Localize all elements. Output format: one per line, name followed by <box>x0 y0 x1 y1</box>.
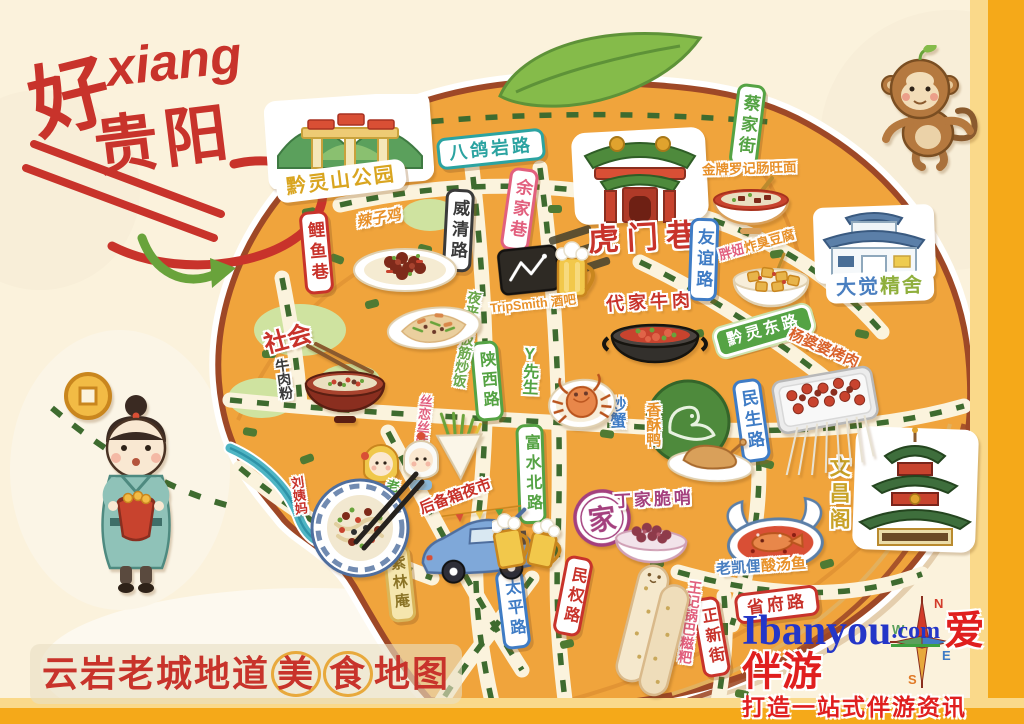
changwang-noodles-illustration <box>706 176 796 236</box>
bbq-skewers-illustration <box>770 360 880 475</box>
watermark-domain: .com <box>891 618 940 647</box>
stinky-tofu-bowl-illustration <box>726 248 816 318</box>
landmark-label-dajue-jingshe: 大觉精舍 <box>826 270 935 304</box>
map-subtitle-prefix: 云岩老城地道 <box>42 653 270 694</box>
boy-mascot-illustration <box>58 368 198 598</box>
watermark: Ibanyou.com 爱伴游 打造一站式伴游资讯 <box>742 610 1020 719</box>
guiyang-food-map: 好 xiang 贵阳 黔灵山公园 虎门巷 大觉精舍 文昌阁 八鸽岩路 余家巷 威… <box>0 0 1024 724</box>
title-pinyin-xiang: xiang <box>104 29 245 95</box>
humen-gate-illustration <box>565 126 715 226</box>
beef-noodle-bowl-illustration <box>296 342 391 427</box>
watermark-brand-en: Ibanyou <box>742 608 891 654</box>
food-label-dingjia-cuishao: 丁家脆哨 <box>614 488 695 512</box>
green-arrow-icon <box>132 224 237 294</box>
map-subtitle-circled-shi: 食 <box>323 651 373 697</box>
dajue-label-part1: 大觉 <box>836 276 881 300</box>
guoba-ciba-illustration <box>596 560 701 700</box>
siwawa-veggie-roll-illustration <box>425 409 492 485</box>
beer-mugs-illustration <box>492 506 562 586</box>
watermark-tagline: 打造一站式伴游资讯 <box>742 696 1020 719</box>
compass-n-label: N <box>934 596 943 611</box>
roast-duck-plate-illustration <box>664 425 758 486</box>
food-label-xiangsu-duck: 香酥鸭 <box>644 402 661 447</box>
beef-hotpot-illustration <box>598 312 713 382</box>
map-subtitle-circled-mei: 美 <box>271 651 321 697</box>
laokaili-label-part2: 酸汤鱼 <box>760 555 806 575</box>
title-chars-guiyang: 贵阳 <box>91 100 238 181</box>
landmark-label-humen-alley: 虎门巷 <box>587 217 706 259</box>
laosufen-bowl-illustration <box>298 468 428 578</box>
monkey-mascot-illustration <box>860 45 990 175</box>
map-subtitle: 云岩老城地道美食地图 <box>30 644 462 704</box>
beer-mug-illustration <box>550 240 602 302</box>
dajue-label-part2: 精舍 <box>880 274 925 298</box>
fried-rice-plate-illustration <box>380 281 487 361</box>
fried-crab-illustration <box>542 349 621 441</box>
map-subtitle-suffix: 地图 <box>374 653 450 694</box>
laokaili-label-part1: 老凯俚 <box>716 558 762 578</box>
shop-label-mr-y: Y先生 <box>518 346 539 396</box>
